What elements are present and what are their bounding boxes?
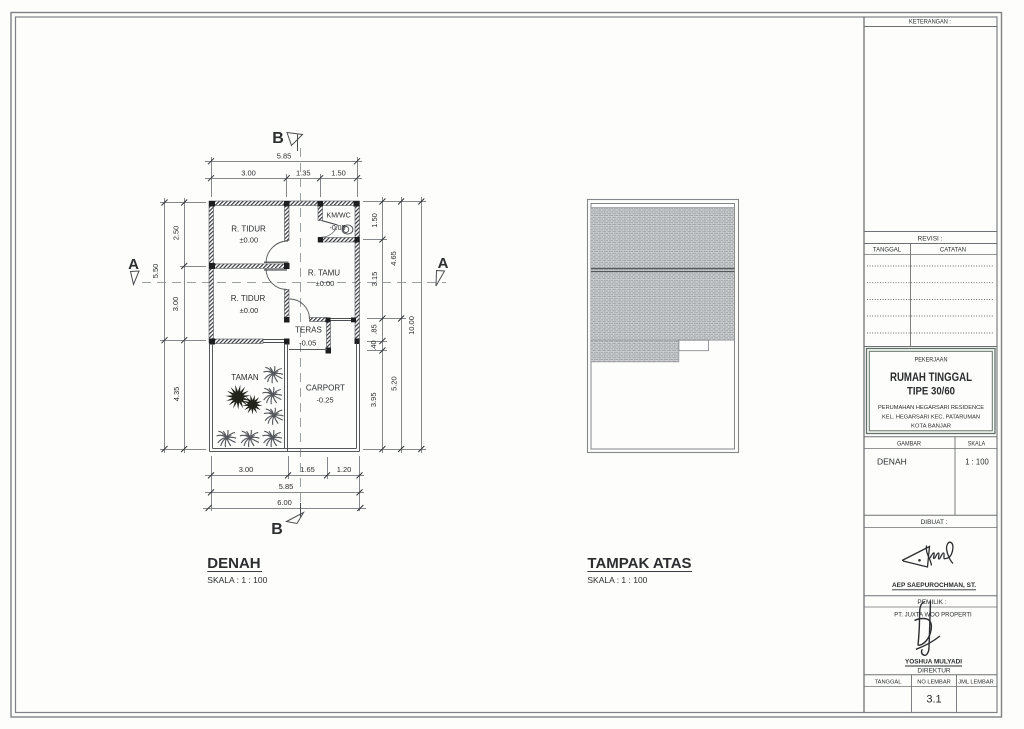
svg-text:3.95: 3.95 (369, 392, 378, 407)
svg-text:JML LEMBAR: JML LEMBAR (958, 680, 994, 686)
svg-text:PERUMAHAN HEGARSARI RESIDENCE: PERUMAHAN HEGARSARI RESIDENCE (878, 405, 984, 411)
svg-text:CATATAN: CATATAN (940, 248, 966, 254)
svg-text:6.00: 6.00 (277, 498, 292, 507)
svg-text:10.00: 10.00 (407, 316, 416, 335)
svg-text:R. TIDUR: R. TIDUR (231, 294, 266, 303)
svg-text:DENAH: DENAH (207, 555, 260, 572)
svg-text:1 : 100: 1 : 100 (965, 457, 989, 467)
svg-text:B: B (271, 521, 283, 538)
svg-text:4.35: 4.35 (172, 387, 181, 402)
svg-text:AEP SAEPUROCHMAN, ST.: AEP SAEPUROCHMAN, ST. (892, 582, 976, 589)
svg-text:SKALA : 1 : 100: SKALA : 1 : 100 (587, 575, 647, 585)
svg-text:.85: .85 (370, 324, 379, 334)
svg-text:TERAS: TERAS (295, 326, 322, 335)
svg-text:PT. JUXTA WOO PROPERTI: PT. JUXTA WOO PROPERTI (894, 613, 972, 619)
svg-text:.40: .40 (369, 340, 378, 350)
svg-text:TANGGAL: TANGGAL (875, 680, 902, 686)
svg-text:RUMAH TINGGAL: RUMAH TINGGAL (890, 370, 972, 384)
svg-text:TANGGAL: TANGGAL (873, 248, 902, 254)
svg-text:B: B (272, 130, 284, 147)
svg-text:1.35: 1.35 (296, 168, 311, 177)
svg-text:-0.05: -0.05 (330, 225, 346, 232)
svg-text:A: A (438, 255, 449, 272)
svg-text:DIREKTUR: DIREKTUR (917, 667, 951, 674)
svg-text:2.50: 2.50 (172, 226, 181, 241)
svg-text:TAMPAK ATAS: TAMPAK ATAS (587, 555, 691, 572)
svg-text:R. TIDUR: R. TIDUR (231, 225, 266, 234)
svg-text:5.85: 5.85 (279, 482, 294, 491)
svg-text:1.50: 1.50 (331, 168, 346, 177)
svg-text:4.65: 4.65 (389, 251, 398, 266)
svg-text:±0.00: ±0.00 (316, 279, 335, 288)
svg-text:3.00: 3.00 (241, 168, 256, 177)
svg-text:1.65: 1.65 (300, 465, 315, 474)
svg-text:GAMBAR: GAMBAR (897, 441, 921, 448)
svg-text:A: A (128, 256, 139, 273)
svg-text:3.00: 3.00 (171, 297, 180, 312)
svg-text:1.50: 1.50 (370, 213, 379, 228)
svg-text:KM/WC: KM/WC (327, 213, 351, 220)
svg-text:YOSHUA MULYADI: YOSHUA MULYADI (905, 659, 962, 666)
svg-text:SKALA : 1 : 100: SKALA : 1 : 100 (207, 575, 267, 585)
svg-text:TIPE 30/60: TIPE 30/60 (907, 386, 955, 398)
svg-text:-0.05: -0.05 (299, 338, 316, 347)
svg-text:NO LEMBAR: NO LEMBAR (917, 680, 951, 686)
svg-text:5.20: 5.20 (390, 376, 399, 391)
svg-text:±0.00: ±0.00 (240, 306, 259, 315)
svg-text:5.85: 5.85 (277, 152, 292, 161)
svg-text:TAMAN: TAMAN (231, 373, 259, 382)
svg-text:1.20: 1.20 (337, 465, 352, 474)
svg-text:CARPORT: CARPORT (306, 384, 345, 393)
svg-text:3.15: 3.15 (370, 272, 379, 287)
svg-text:R. TAMU: R. TAMU (308, 268, 340, 277)
svg-text:-0.25: -0.25 (316, 395, 333, 404)
svg-text:DENAH: DENAH (877, 457, 907, 467)
svg-text:SKALA: SKALA (968, 441, 986, 448)
svg-text:KETERANGAN :: KETERANGAN : (909, 19, 951, 26)
svg-text:±0.00: ±0.00 (239, 236, 258, 245)
svg-text:KOTA BANJAR: KOTA BANJAR (911, 423, 951, 429)
svg-text:DIBUAT :: DIBUAT : (921, 519, 948, 526)
svg-text:3.1: 3.1 (926, 694, 941, 706)
svg-text:REVISI :: REVISI : (918, 236, 943, 243)
svg-text:5.50: 5.50 (151, 264, 160, 279)
svg-text:KEL. HEGARSARI KEC. PATARUMAN: KEL. HEGARSARI KEC. PATARUMAN (882, 414, 980, 420)
svg-text:3.00: 3.00 (239, 465, 254, 474)
svg-text:PEKERJAAN: PEKERJAAN (915, 357, 948, 364)
